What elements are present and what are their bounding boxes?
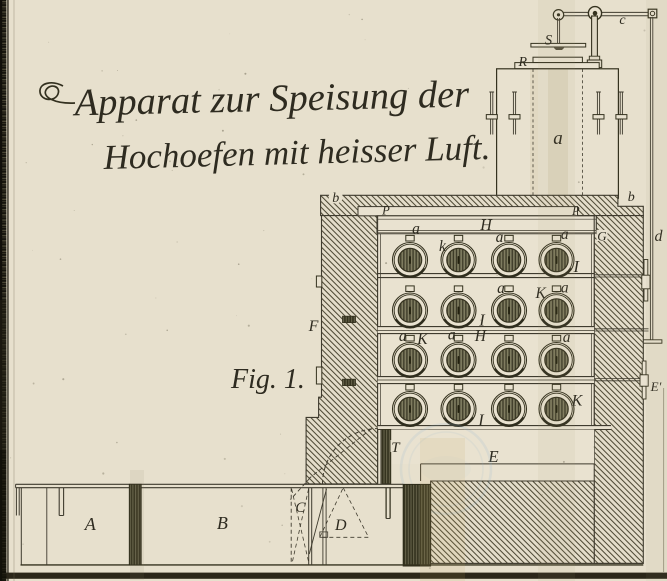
svg-text:Fig. 1.: Fig. 1. [230,364,305,395]
svg-text:a: a [412,221,420,238]
svg-text:A: A [84,514,97,534]
svg-text:D: D [334,517,347,534]
svg-text:C: C [295,500,306,516]
svg-text:a: a [497,280,505,297]
svg-text:R: R [518,55,528,70]
svg-text:G: G [597,229,607,244]
svg-text:b: b [332,191,339,206]
svg-text:a: a [399,328,407,345]
svg-text:a: a [496,229,504,246]
svg-text:b: b [628,190,635,205]
svg-text:H: H [479,217,493,234]
svg-text:k: k [439,238,447,255]
svg-text:K: K [416,331,428,348]
svg-text:H: H [474,328,487,345]
svg-text:F: F [308,318,319,335]
svg-text:a: a [448,327,456,344]
svg-text:c: c [619,13,626,28]
svg-text:B: B [217,513,228,533]
